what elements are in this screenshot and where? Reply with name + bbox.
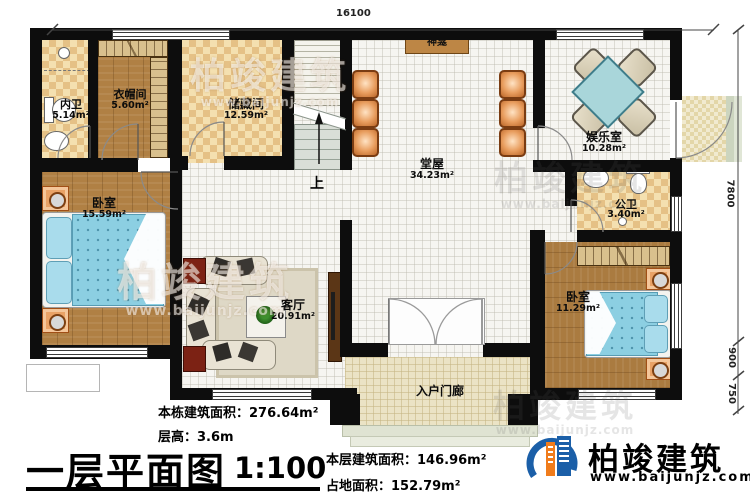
wall — [530, 242, 545, 400]
nightstand — [42, 186, 69, 211]
dim-right-lower: 750 — [726, 383, 737, 404]
wall — [88, 40, 98, 158]
room-area-bedroom-left: 15.59m² — [82, 209, 126, 220]
hall-chair — [499, 70, 526, 99]
nightstand — [646, 268, 671, 290]
side-porch-floor — [682, 96, 726, 162]
wall — [565, 172, 577, 206]
room-label-entry-porch: 入户门廊 — [416, 382, 464, 399]
pillow — [46, 217, 72, 259]
wall — [340, 220, 352, 357]
wall — [224, 156, 290, 170]
exterior-step — [26, 364, 100, 392]
plan-scale: 1:100 — [234, 451, 326, 485]
wall — [340, 28, 352, 170]
stat-floor-area: 本层建筑面积：146.96m² — [326, 449, 486, 468]
room-area-cloakroom: 5.60m² — [111, 100, 149, 111]
pillow — [644, 325, 668, 353]
stairs-up-label: 上 — [310, 173, 324, 193]
shower-divider — [44, 70, 90, 71]
end-table — [183, 258, 206, 284]
dim-top: 16100 — [336, 8, 371, 19]
window — [578, 389, 656, 400]
closet — [98, 40, 168, 57]
window — [112, 29, 230, 40]
dim-right-mid: 900 — [726, 347, 737, 368]
entry-door-panel — [388, 298, 485, 345]
shower-head — [58, 47, 70, 59]
wall — [30, 28, 42, 359]
nightstand — [646, 358, 671, 380]
brand-logo-icon — [526, 430, 582, 490]
wall — [533, 28, 545, 128]
wall — [577, 230, 682, 242]
porch-pillar — [330, 394, 360, 425]
brand-url: www.baijunjz.com — [590, 470, 750, 485]
pillow — [644, 295, 668, 323]
end-table — [183, 346, 206, 372]
wardrobe — [577, 246, 670, 266]
pillow — [46, 261, 72, 304]
hall-chair — [499, 99, 526, 128]
stat-building-area: 本栋建筑面积：276.64m² — [158, 402, 318, 421]
tv — [331, 292, 335, 340]
room-area-bedroom-right: 11.29m² — [556, 303, 600, 314]
dim-right-upper: 7800 — [724, 180, 735, 208]
wall — [533, 160, 682, 172]
hall-chair — [352, 128, 379, 157]
floor-plan-canvas: 神龛 — [0, 0, 750, 500]
title-underline — [26, 487, 320, 491]
window — [556, 29, 644, 40]
nightstand — [42, 308, 69, 333]
window — [671, 196, 682, 232]
wall — [30, 158, 138, 172]
wall — [352, 343, 388, 357]
toilet-bowl — [630, 173, 647, 194]
side-porch-step — [734, 96, 742, 162]
room-area-living: 20.91m² — [271, 311, 315, 322]
wall — [168, 40, 182, 158]
door-gap — [670, 100, 682, 158]
room-area-storage: 12.59m² — [224, 110, 268, 121]
bathroom-sink — [44, 131, 69, 151]
stairs-lower-flight — [294, 124, 345, 170]
side-porch-step — [726, 96, 734, 162]
room-area-hall: 34.23m² — [410, 170, 454, 181]
room-area-entertainment: 10.28m² — [582, 143, 626, 154]
closet — [150, 57, 168, 158]
wall — [170, 158, 182, 348]
hall-chair — [352, 99, 379, 128]
room-area-public-bath: 3.40m² — [607, 209, 645, 220]
porch-step — [350, 436, 530, 447]
room-area-inner-bath: 5.14m² — [52, 110, 90, 121]
wall — [483, 343, 530, 357]
window — [671, 283, 682, 349]
stairs-upper-flight — [294, 40, 345, 106]
window — [212, 389, 312, 400]
hall-chair — [499, 128, 526, 157]
wall — [282, 40, 294, 170]
window — [46, 347, 148, 358]
sofa-pillow — [237, 258, 256, 277]
hall-chair — [352, 70, 379, 99]
wall — [182, 156, 188, 170]
stat-land-area: 占地面积：152.79m² — [326, 475, 460, 494]
wall — [530, 230, 545, 242]
